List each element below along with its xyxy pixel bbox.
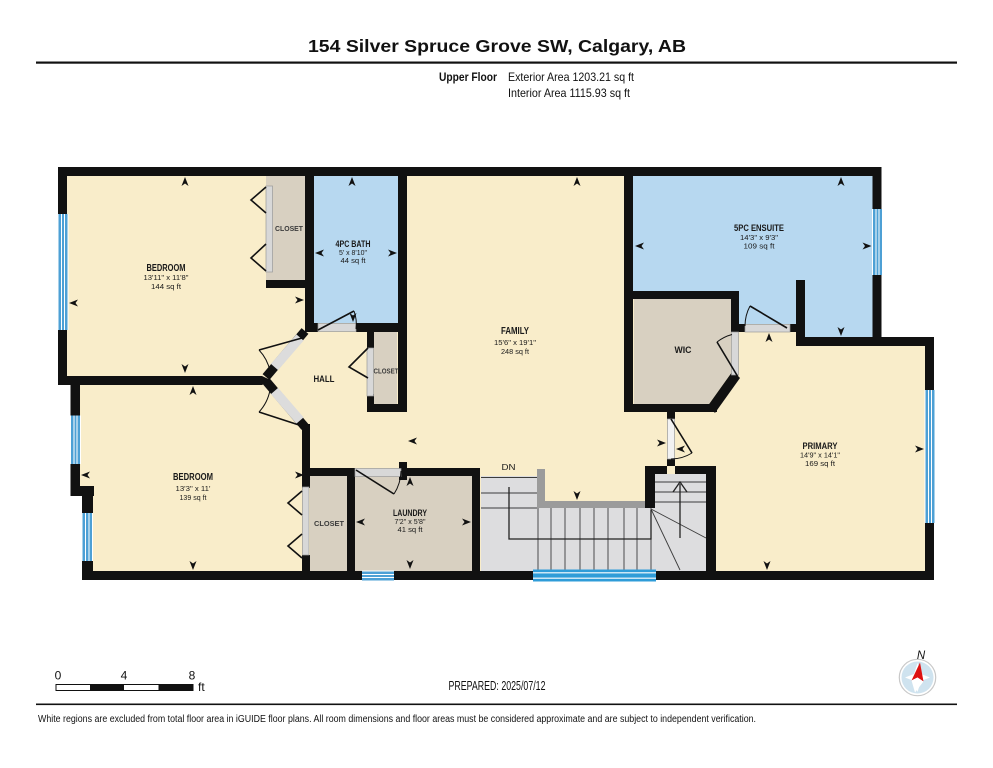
svg-text:13'11" x 11'8": 13'11" x 11'8" [144,273,189,282]
svg-text:8: 8 [189,669,196,683]
svg-text:44 sq ft: 44 sq ft [341,256,367,265]
svg-text:White regions are excluded fro: White regions are excluded from total fl… [38,714,756,725]
svg-text:Upper Floor: Upper Floor [439,70,497,84]
svg-text:144 sq ft: 144 sq ft [151,282,182,291]
svg-text:13'3" x 11': 13'3" x 11' [176,484,212,493]
svg-text:WIC: WIC [675,345,692,355]
svg-text:5PC ENSUITE: 5PC ENSUITE [734,223,784,233]
svg-text:Exterior Area 1203.21 sq ft: Exterior Area 1203.21 sq ft [508,70,635,84]
svg-text:N: N [917,650,926,662]
svg-text:ft: ft [198,680,205,694]
svg-text:CLOSET: CLOSET [275,224,303,233]
svg-text:0: 0 [55,669,62,683]
svg-text:PREPARED: 2025/07/12: PREPARED: 2025/07/12 [449,678,546,693]
svg-text:41 sq ft: 41 sq ft [398,525,424,534]
svg-text:HALL: HALL [314,374,335,384]
svg-text:154 Silver Spruce Grove SW, Ca: 154 Silver Spruce Grove SW, Calgary, AB [308,36,686,56]
svg-text:CLOSET: CLOSET [314,519,344,528]
svg-text:PRIMARY: PRIMARY [803,441,838,451]
svg-text:15'6" x 19'1": 15'6" x 19'1" [494,338,536,347]
svg-text:4: 4 [121,669,128,683]
svg-text:169 sq ft: 169 sq ft [805,459,836,468]
svg-text:Interior Area 1115.93 sq ft: Interior Area 1115.93 sq ft [508,86,631,100]
svg-text:248 sq ft: 248 sq ft [501,347,530,356]
svg-text:FAMILY: FAMILY [501,326,529,337]
svg-text:109 sq ft: 109 sq ft [744,242,776,251]
svg-text:CLOSET: CLOSET [374,367,399,376]
svg-text:DN: DN [502,462,516,472]
svg-text:139 sq ft: 139 sq ft [180,493,208,502]
svg-text:BEDROOM: BEDROOM [173,472,213,483]
